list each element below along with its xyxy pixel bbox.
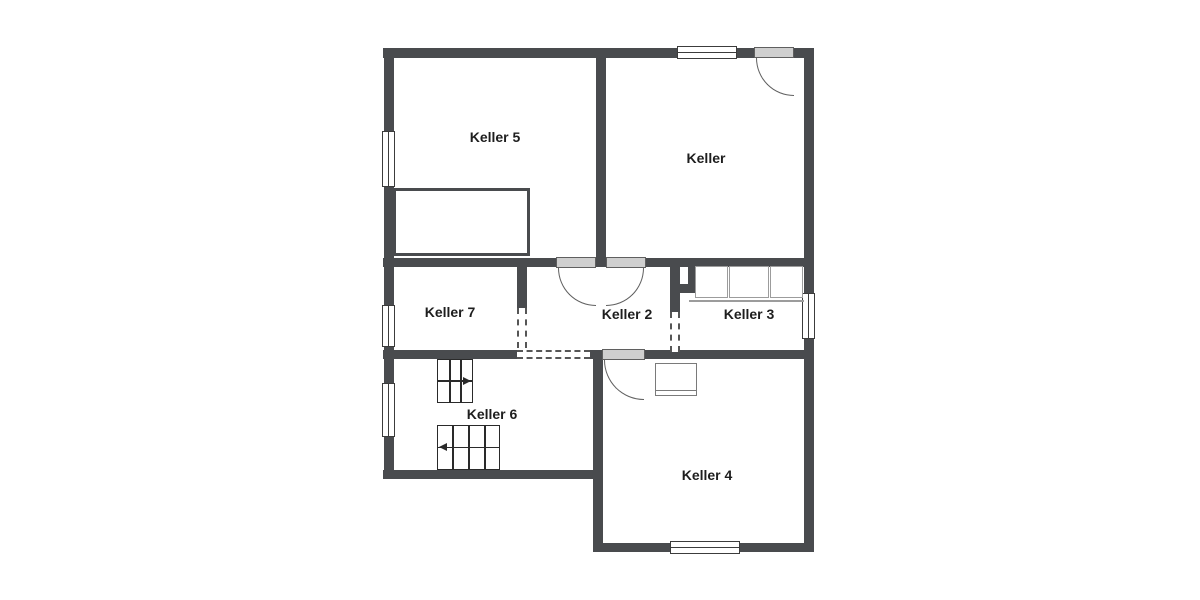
window-symbol-left-lower xyxy=(382,383,395,437)
door-panel-keller xyxy=(754,47,794,58)
appliance-front-edge xyxy=(655,390,697,392)
stair-direction-arrow-right-icon xyxy=(463,377,471,385)
room-label-keller: Keller xyxy=(687,150,726,166)
window-symbol-bottom xyxy=(670,541,740,554)
stair-direction-arrow-left-icon xyxy=(439,443,447,451)
door-swing-arc-keller4 xyxy=(604,360,644,400)
wall-lower-left-segment xyxy=(383,350,517,359)
window-symbol-left-middle xyxy=(382,305,395,347)
fixture-unit-keller3 xyxy=(729,266,769,298)
wall-middle-left-segment xyxy=(383,258,556,267)
door-swing-arc-keller xyxy=(756,58,794,96)
opening-keller2-keller6 xyxy=(517,350,590,359)
wall-keller5-keller-divider xyxy=(596,48,606,267)
room-label-keller6: Keller 6 xyxy=(467,406,518,422)
wall-keller6-bottom xyxy=(383,470,603,479)
room-label-keller4: Keller 4 xyxy=(682,467,733,483)
room-label-keller7: Keller 7 xyxy=(425,304,476,320)
floor-plan: Keller 5 Keller Keller 7 Keller 2 Keller… xyxy=(0,0,1200,600)
wall-keller4-left xyxy=(593,350,603,552)
door-swing-arc-keller2-left xyxy=(558,268,596,306)
fixture-shelf-line-keller3 xyxy=(689,300,804,302)
opening-keller7-keller2 xyxy=(517,308,527,348)
door-panel-keller2-left xyxy=(556,257,596,268)
window-symbol-left-upper xyxy=(382,131,395,187)
storage-nook-outline xyxy=(393,188,530,256)
door-panel-keller2-right xyxy=(606,257,646,268)
fixture-unit-keller3 xyxy=(695,266,728,298)
room-label-keller5: Keller 5 xyxy=(470,129,521,145)
opening-keller2-keller3 xyxy=(670,312,680,352)
staircase-lower-flight xyxy=(437,425,500,470)
room-label-keller2: Keller 2 xyxy=(602,306,653,322)
door-swing-arc-keller2-right xyxy=(606,268,644,306)
window-symbol-top xyxy=(677,46,737,59)
chimney-bottom xyxy=(670,284,698,293)
wall-keller7-keller2-divider xyxy=(517,267,527,308)
fixture-unit-keller3 xyxy=(770,266,803,298)
staircase-upper-flight xyxy=(437,359,473,403)
stair-walkline xyxy=(438,447,499,449)
room-label-keller3: Keller 3 xyxy=(724,306,775,322)
appliance-keller4 xyxy=(655,363,697,396)
door-panel-keller4 xyxy=(602,349,645,360)
